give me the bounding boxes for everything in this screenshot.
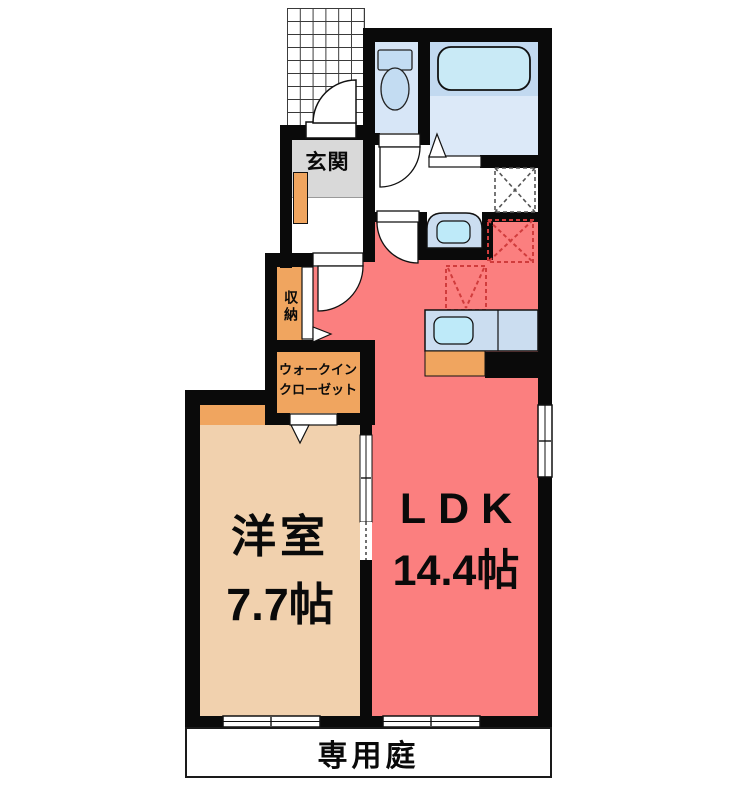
bath-folding-door-icon — [429, 134, 446, 157]
wic-folding-door-icon — [291, 425, 309, 443]
toilet-door-leaf — [379, 134, 420, 147]
washroom-door-swing-arc — [377, 222, 418, 263]
western-room-size: 7.7帖 — [196, 571, 364, 639]
ldk-label: LDK 14.4帖 — [373, 478, 539, 603]
window-ldk-east — [538, 405, 552, 477]
hall-door-leaf — [313, 253, 363, 266]
washbasin-icon — [427, 213, 482, 248]
private-garden-area: 専用庭 — [185, 727, 552, 778]
wic-label-line2: クローゼット — [274, 380, 362, 400]
storage-folding-door-icon — [313, 327, 331, 342]
storage-label: 収納 — [281, 272, 301, 342]
window-western-south — [223, 716, 320, 727]
symbols-layer — [0, 0, 736, 800]
floorplan-canvas: 玄関 収納 ウォークイン クローゼット 洋室 7.7帖 LDK 14.4帖 専用… — [0, 0, 736, 800]
bathtub-icon — [438, 47, 530, 90]
washing-machine-space-icon — [495, 168, 535, 212]
storage-door-panel — [302, 267, 313, 339]
wic-door-panel — [290, 414, 337, 425]
front-door-swing-arc — [313, 80, 356, 123]
kitchen-counter-icon — [425, 310, 538, 376]
western-room-label: 洋室 7.7帖 — [196, 503, 364, 638]
bath-door-panel — [429, 156, 481, 167]
western-room-name: 洋室 — [196, 503, 364, 571]
window-ldk-south — [383, 716, 480, 727]
toilet-icon — [378, 50, 412, 110]
wic-label-line1: ウォークイン — [274, 360, 362, 380]
wic-label: ウォークイン クローゼット — [274, 360, 362, 400]
toilet-door-swing-arc — [380, 147, 420, 187]
ldk-size: 14.4帖 — [373, 540, 539, 602]
genkan-label: 玄関 — [292, 146, 363, 176]
appliance-space-icon — [446, 266, 486, 310]
front-door-leaf — [306, 122, 356, 138]
hall-door-swing-arc — [318, 266, 363, 311]
ldk-name: LDK — [373, 478, 539, 540]
washroom-door-leaf — [377, 211, 419, 223]
private-garden-label: 専用庭 — [318, 731, 420, 775]
refrigerator-space-icon — [488, 220, 533, 262]
